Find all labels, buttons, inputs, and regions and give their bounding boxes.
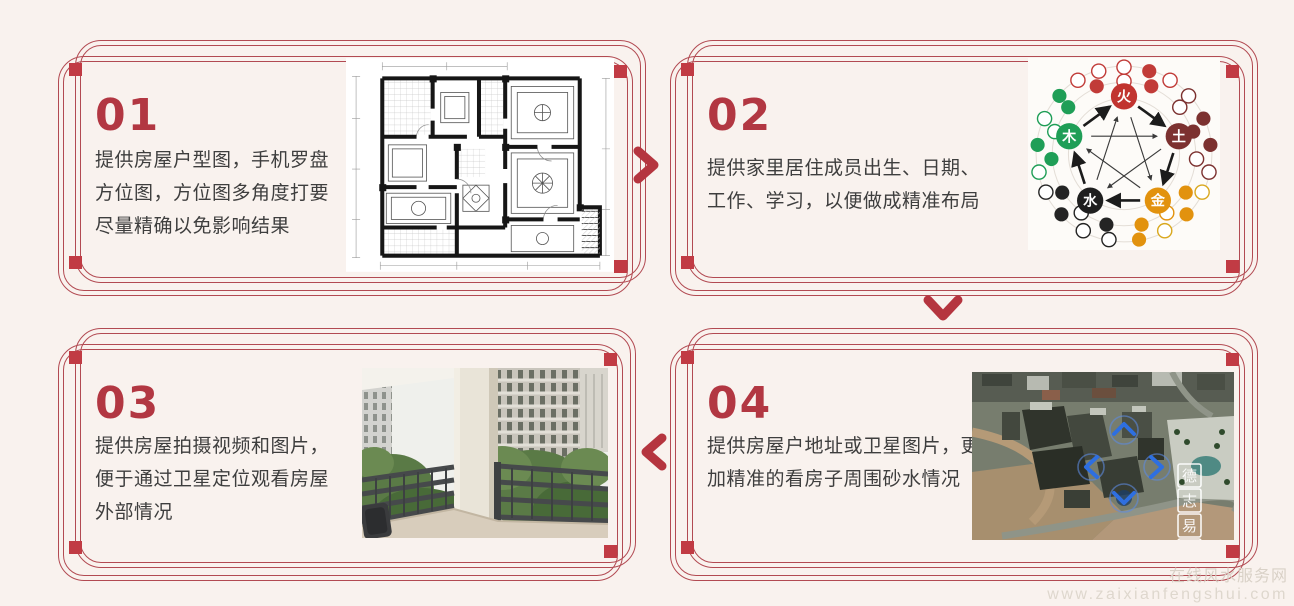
chevron-left-icon xyxy=(637,430,671,479)
text-line: 方位图，方位图多角度打要 xyxy=(95,177,329,210)
floor-plan-image xyxy=(346,56,614,274)
text-line: 外部情况 xyxy=(95,496,329,529)
corner-square xyxy=(681,351,694,364)
earth-label: 土 xyxy=(1172,128,1186,144)
step-card-04: 04 提供房屋户地址或卫星图片，更 加精准的看房子周围砂水情况 xyxy=(670,328,1258,581)
step-description: 提供房屋户型图，手机罗盘 方位图，方位图多角度打要 尽量精确以免影响结果 xyxy=(95,144,329,243)
corner-square xyxy=(69,351,82,364)
satellite-photo: 德 志 易 xyxy=(972,372,1234,540)
corner-square xyxy=(1226,65,1239,78)
chevron-right-icon xyxy=(629,143,663,192)
site-watermark: 在线风水服务网 www.zaixianfengshui.com xyxy=(1047,562,1288,604)
corner-square xyxy=(69,541,82,554)
step-description: 提供房屋户地址或卫星图片，更 加精准的看房子周围砂水情况 xyxy=(707,430,980,496)
watermark-char: 易 xyxy=(1182,518,1197,535)
text-line: 工作、学习，以便做成精准布局 xyxy=(707,185,980,218)
step-number: 04 xyxy=(707,378,772,429)
corner-square xyxy=(1226,545,1239,558)
text-line: 提供房屋户型图，手机罗盘 xyxy=(95,144,329,177)
wood-label: 木 xyxy=(1061,128,1077,144)
step-card-03: 03 提供房屋拍摄视频和图片， 便于通过卫星定位观看房屋 外部情况 xyxy=(58,328,636,581)
metal-label: 金 xyxy=(1150,193,1166,209)
step-number: 01 xyxy=(95,90,160,141)
site-url: www.zaixianfengshui.com xyxy=(1047,586,1288,604)
step-description: 提供房屋拍摄视频和图片， 便于通过卫星定位观看房屋 外部情况 xyxy=(95,430,329,529)
corner-square xyxy=(614,65,627,78)
step-description: 提供家里居住成员出生、日期、 工作、学习，以便做成精准布局 xyxy=(707,152,980,218)
balcony-photo xyxy=(362,368,608,538)
chevron-down-icon xyxy=(920,291,966,330)
text-line: 便于通过卫星定位观看房屋 xyxy=(95,463,329,496)
chair xyxy=(362,502,392,538)
water-label: 水 xyxy=(1083,193,1098,209)
corner-square xyxy=(1226,353,1239,366)
text-line: 加精准的看房子周围砂水情况 xyxy=(707,463,980,496)
step-card-02: 02 提供家里居住成员出生、日期、 工作、学习，以便做成精准布局 xyxy=(670,40,1258,296)
corner-square xyxy=(614,260,627,273)
corner-square xyxy=(681,63,694,76)
watermark-char: 德 xyxy=(1182,467,1197,485)
fengshui-steps-infographic: { "page": { "background_color": "#f9f2ee… xyxy=(0,0,1294,606)
text-line: 尽量精确以免影响结果 xyxy=(95,210,329,243)
corner-square xyxy=(604,545,617,558)
text-line: 提供房屋户地址或卫星图片，更 xyxy=(707,430,980,463)
text-line: 提供房屋拍摄视频和图片， xyxy=(95,430,329,463)
corner-square xyxy=(681,541,694,554)
corner-square xyxy=(681,256,694,269)
watermark-char: 志 xyxy=(1182,493,1197,510)
corner-square xyxy=(69,256,82,269)
step-card-01: 01 提供房屋户型图，手机罗盘 方位图，方位图多角度打要 尽量精确以免影响结果 xyxy=(58,40,646,296)
fire-label: 火 xyxy=(1117,88,1132,104)
five-elements-diagram: 火 土 金 水 木 xyxy=(1028,58,1220,250)
step-number: 03 xyxy=(95,378,160,429)
step-number: 02 xyxy=(707,90,772,141)
corner-square xyxy=(1226,260,1239,273)
corner-square xyxy=(69,63,82,76)
text-line: 提供家里居住成员出生、日期、 xyxy=(707,152,980,185)
site-name: 在线风水服务网 xyxy=(1047,562,1288,586)
corner-square xyxy=(604,353,617,366)
